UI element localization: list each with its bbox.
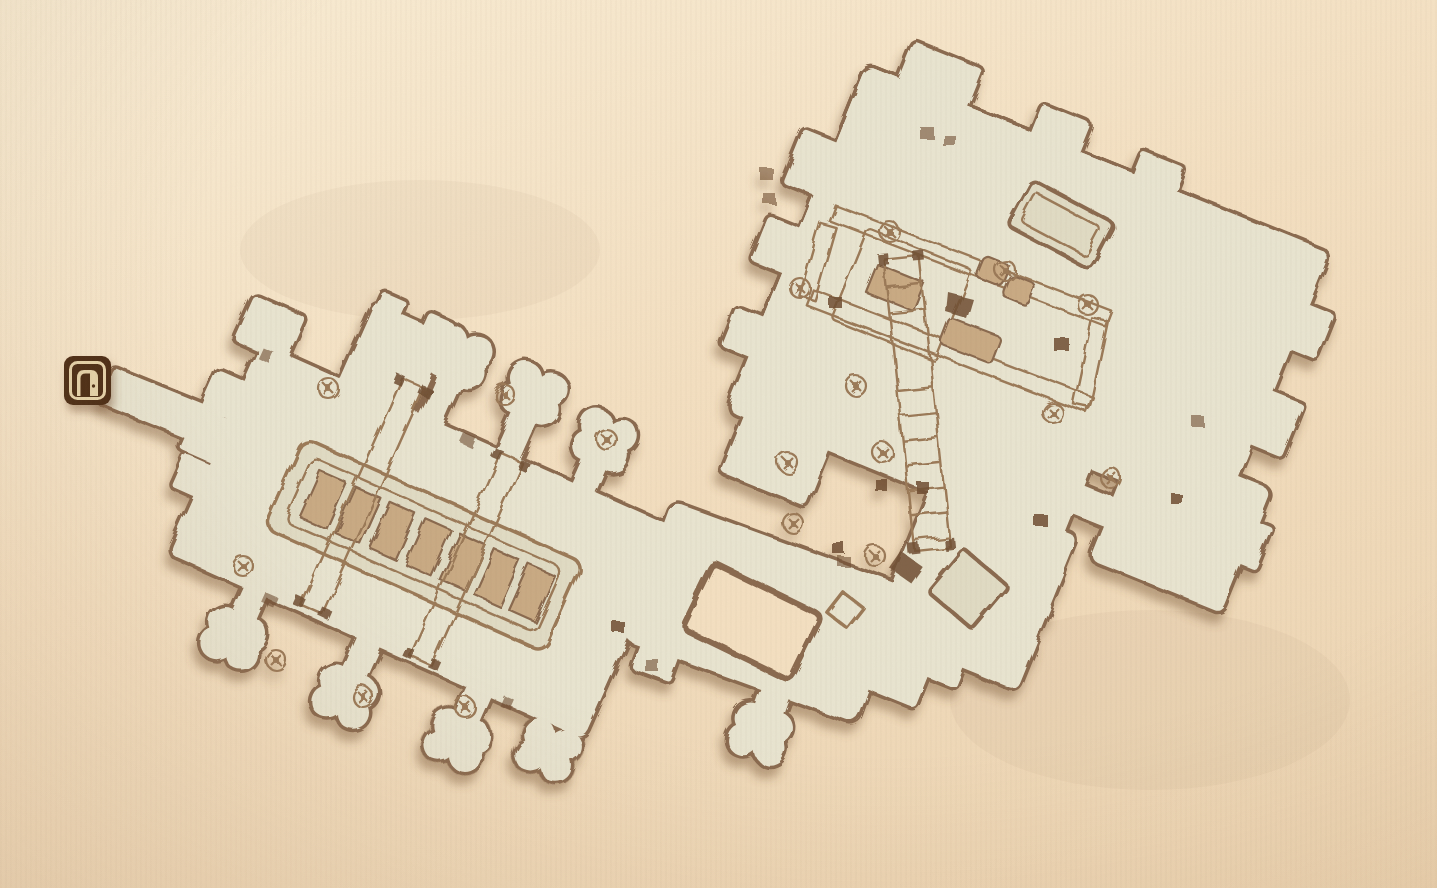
local-map-view[interactable] — [0, 0, 1437, 888]
film-grain-overlay — [0, 0, 1437, 888]
local-map-canvas[interactable] — [0, 0, 1437, 888]
